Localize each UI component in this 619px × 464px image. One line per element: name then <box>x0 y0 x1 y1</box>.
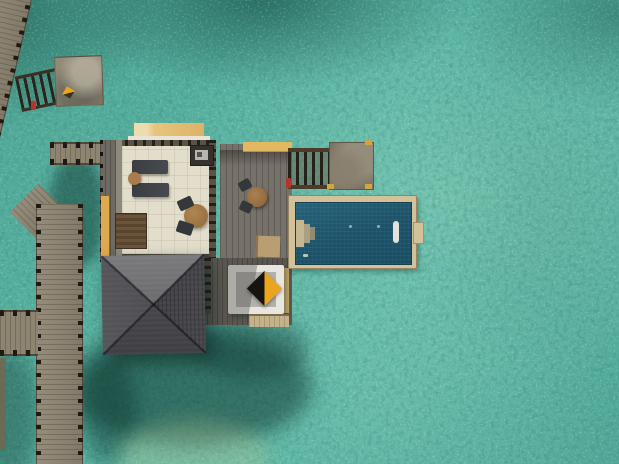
platform-corner-accent <box>365 140 372 145</box>
sun-lounger-2 <box>132 183 169 197</box>
pool-jet-2 <box>377 225 380 228</box>
grill-burner <box>197 152 202 157</box>
pool-bench <box>393 221 399 243</box>
middle-deck-yellow-trim <box>243 142 292 152</box>
platform-corner-accent <box>365 184 372 189</box>
deck-mat <box>256 236 281 258</box>
pool-side-ledge <box>413 222 424 244</box>
pool-access-stairs <box>288 148 330 189</box>
boardwalk-vertical <box>36 204 83 464</box>
grill-unit <box>190 145 214 166</box>
daybed-step <box>249 314 289 327</box>
life-ring-marker-deck <box>286 178 291 188</box>
life-ring-marker-jetty <box>31 101 36 110</box>
villa-left-orange-trim <box>101 196 109 262</box>
boardwalk-branch-left <box>0 310 38 356</box>
left-edge-walkway <box>0 358 6 450</box>
landing-platform <box>329 142 374 190</box>
pool-corner-mark <box>303 254 308 257</box>
scene-root <box>0 0 619 464</box>
arrival-platform <box>54 55 104 107</box>
pool-step-1 <box>296 220 304 247</box>
storage-bench <box>115 213 147 249</box>
pool-jet-1 <box>349 225 352 228</box>
platform-corner-accent <box>327 184 334 189</box>
roof-ridge-lines <box>101 254 206 355</box>
middle-deck-shade <box>220 150 292 166</box>
side-table <box>128 172 141 185</box>
villa-pyramid-roof <box>101 254 206 355</box>
pool-step-3 <box>310 227 315 240</box>
